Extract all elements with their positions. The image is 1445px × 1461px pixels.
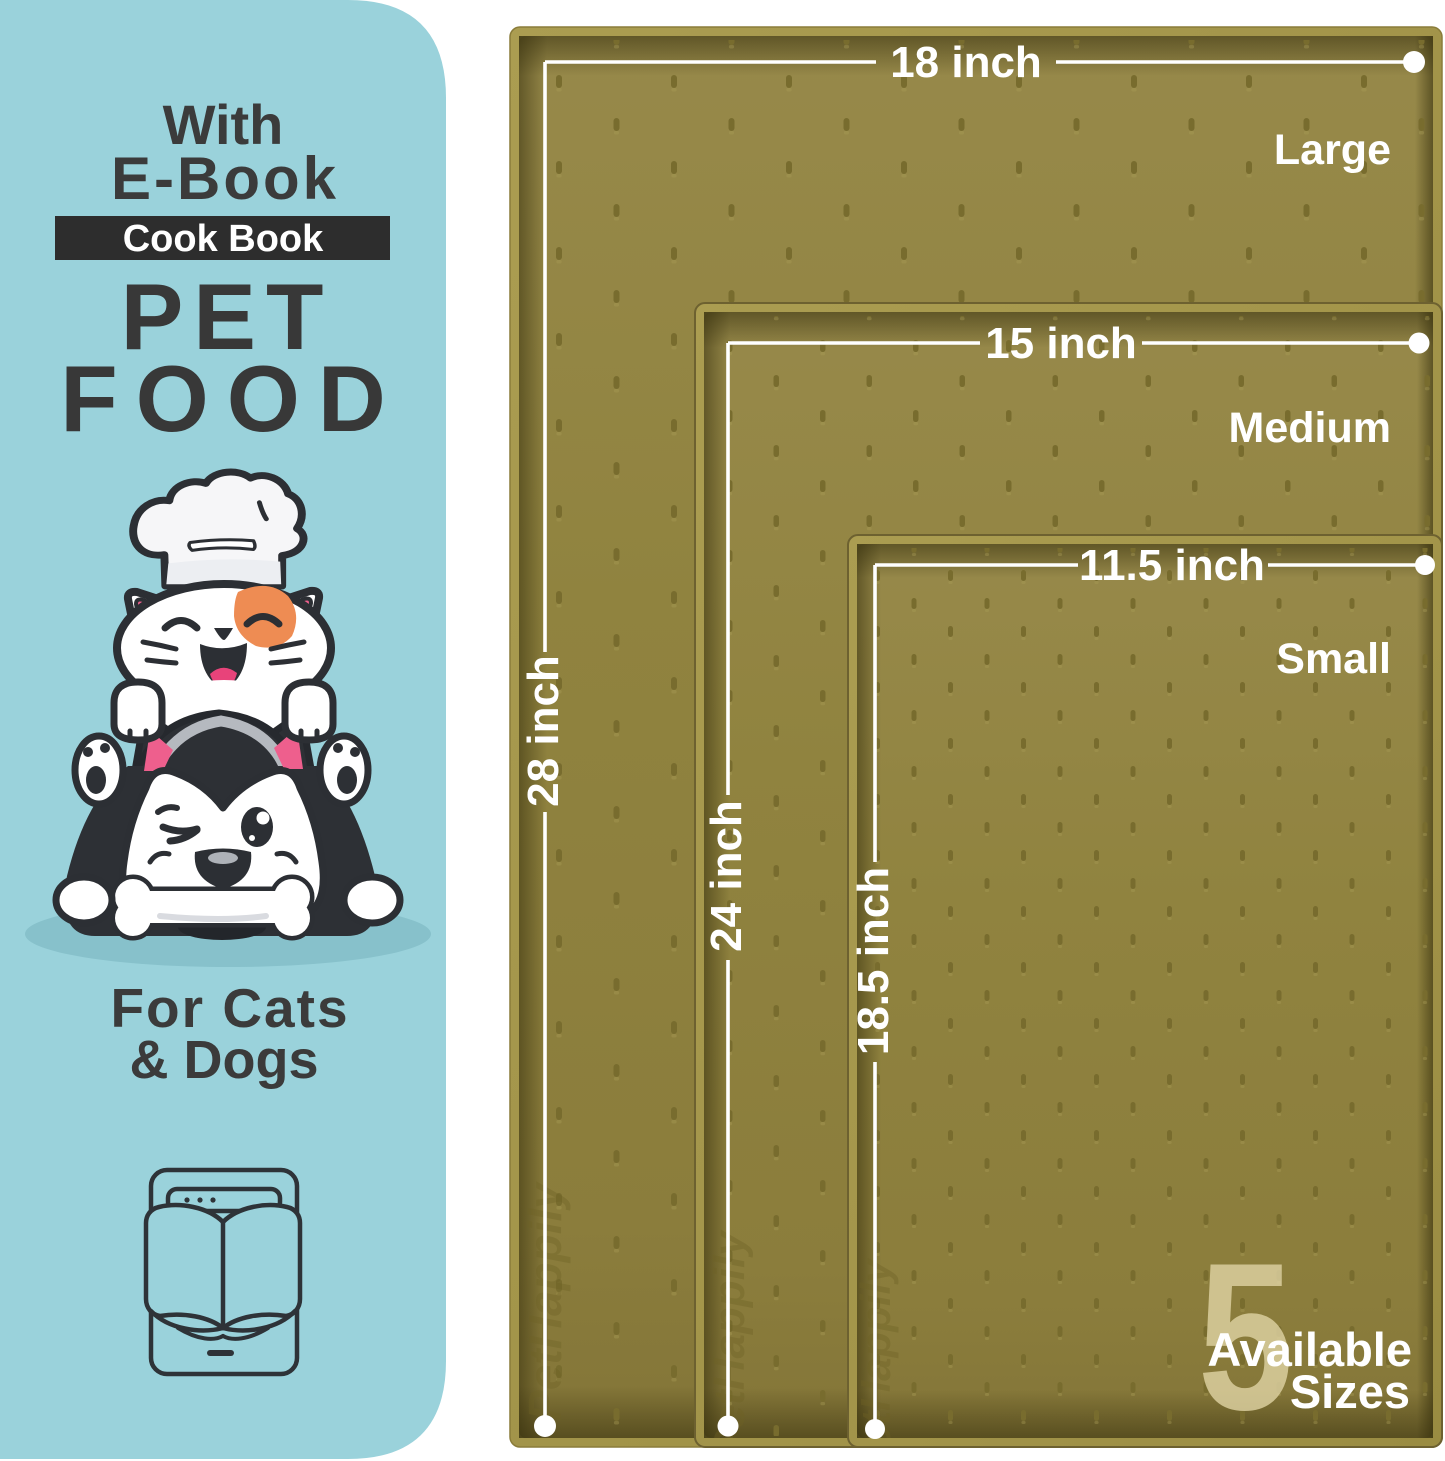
svg-text:Medium: Medium (1229, 404, 1391, 452)
svg-text:Large: Large (1274, 126, 1391, 174)
svg-text:28 inch: 28 inch (519, 655, 568, 807)
svg-text:15 inch: 15 inch (985, 319, 1137, 368)
svg-text:FOOD: FOOD (60, 346, 404, 451)
svg-text:& Dogs: & Dogs (130, 1030, 319, 1090)
svg-text:18.5 inch: 18.5 inch (849, 867, 898, 1055)
svg-text:Cook Book: Cook Book (123, 218, 324, 260)
svg-text:Small: Small (1276, 635, 1391, 683)
svg-text:E-Book: E-Book (111, 145, 339, 212)
svg-text:18 inch: 18 inch (890, 38, 1042, 87)
svg-text:Sizes: Sizes (1290, 1365, 1410, 1418)
svg-text:24 inch: 24 inch (702, 800, 751, 952)
svg-text:11.5 inch: 11.5 inch (1079, 541, 1265, 590)
